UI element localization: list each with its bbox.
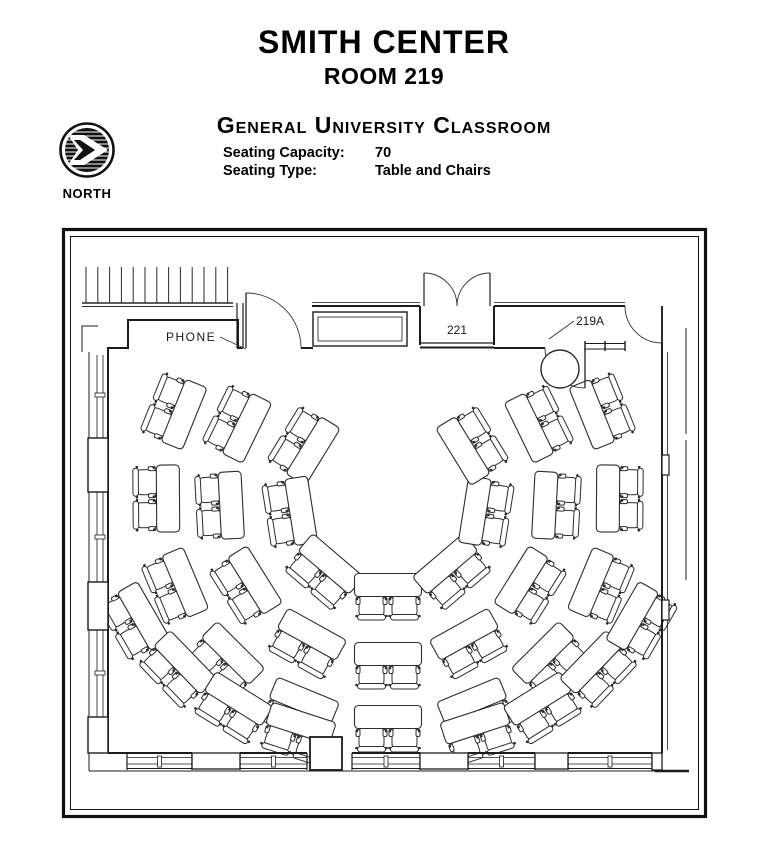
sidelite-window [585,341,625,351]
table-group [207,546,282,627]
table-group [504,383,575,464]
chair[interactable] [355,665,388,690]
table-group [266,608,347,681]
table-group [201,383,272,464]
wall-pier [88,717,108,753]
table-group [133,465,180,532]
table-group [355,643,422,690]
chair[interactable] [619,466,644,499]
table-group [494,546,569,627]
phone-leader-line [220,337,246,349]
wall-pier [420,753,468,769]
wall-pier [88,582,108,630]
door-219a-label: 219A [576,314,604,328]
door-top-right[interactable] [625,306,662,343]
phone-label: PHONE [166,330,216,344]
wall-corridor [312,303,625,307]
wall-top-left-notch [82,326,98,352]
bottom-window [568,753,652,770]
seating-area [97,370,680,767]
wall-pier [88,438,108,492]
table[interactable] [156,465,179,532]
chair[interactable] [133,466,158,499]
chair[interactable] [133,499,158,532]
table-group [194,471,244,540]
bottom-window [352,753,420,770]
chair[interactable] [195,473,221,507]
table-group [266,404,341,485]
table[interactable] [355,643,422,666]
room-221-label: 221 [447,323,467,337]
table-group [412,533,493,612]
table[interactable] [532,471,558,539]
chair[interactable] [355,728,388,753]
wall-right [655,306,689,771]
table-group [355,706,422,753]
door-219a-leader-line [549,321,574,339]
chair[interactable] [618,499,643,532]
table-group [355,574,422,621]
table[interactable] [355,574,422,597]
wall-pier [310,737,342,770]
table-group [596,465,643,532]
chair[interactable] [388,728,421,753]
chair[interactable] [355,596,388,621]
table-group [569,370,637,450]
stairs [82,267,233,307]
door-double-221[interactable] [424,273,490,306]
table-group [458,476,514,549]
round-stool [541,350,579,388]
table[interactable] [218,471,244,539]
chair[interactable] [554,506,580,540]
table-group [532,471,582,540]
wall-left [88,352,127,771]
wall-pier [192,753,240,769]
entry-mat [313,312,407,346]
table-group [436,404,511,485]
floor-plan: PHONE 221 219A [0,0,768,842]
chair[interactable] [196,506,222,540]
table[interactable] [355,706,422,729]
bottom-window [127,753,192,770]
table[interactable] [596,465,619,532]
wall-pier [652,753,662,770]
chair[interactable] [555,473,581,507]
chair[interactable] [388,665,421,690]
table-group [139,370,207,450]
door-left-entry[interactable] [246,293,301,348]
table-group [283,533,364,612]
table-group [429,608,510,681]
chair[interactable] [388,596,421,621]
wall-pier [535,753,568,769]
